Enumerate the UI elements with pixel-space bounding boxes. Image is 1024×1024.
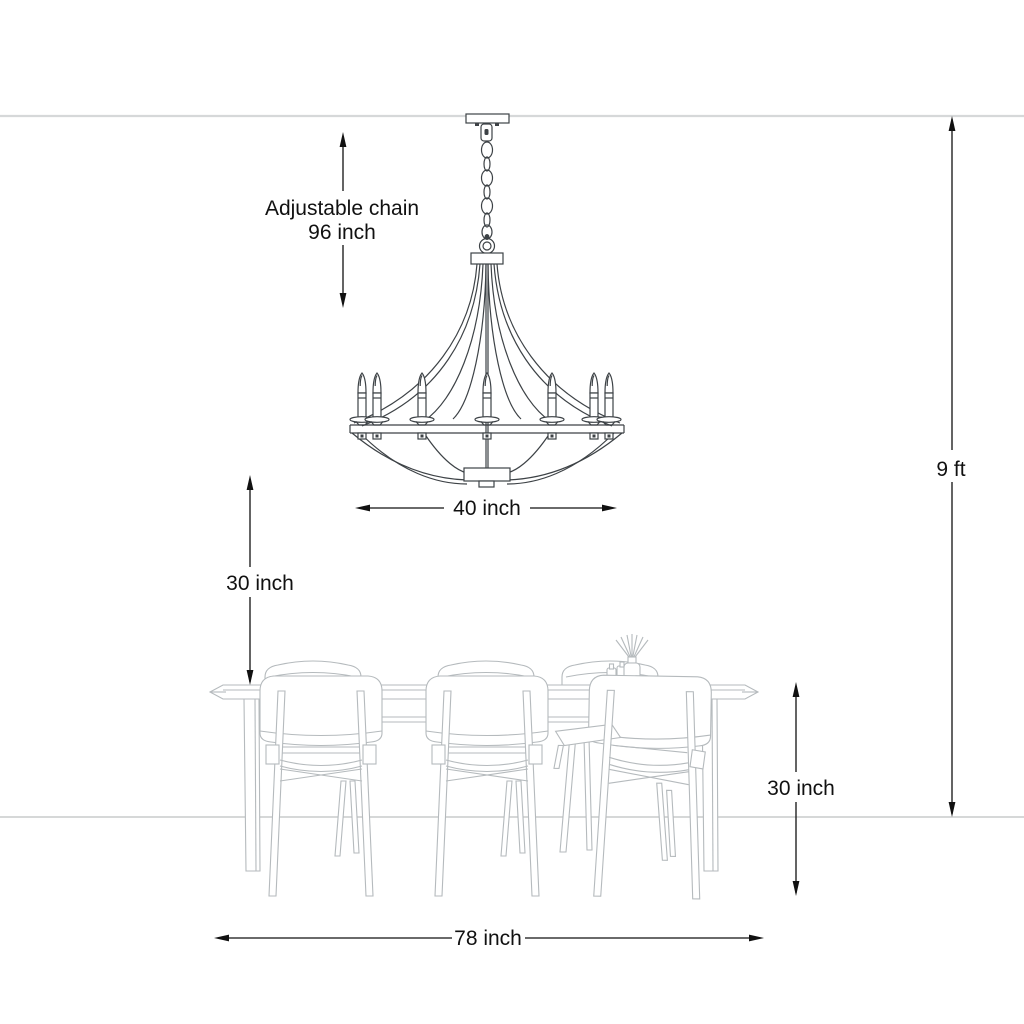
- chair-drawing-center: [426, 676, 548, 896]
- hanging-loop: [480, 239, 495, 254]
- dimension-diagram: Adjustable chain 96 inch 40 inch 9 ft 30…: [0, 0, 1024, 1024]
- chair-drawing-left: [260, 676, 382, 896]
- ceiling-height-label: 9 ft: [936, 458, 965, 481]
- hanging-clearance-label: 30 inch: [226, 572, 294, 595]
- chandelier-width-dimension: 40 inch: [355, 497, 617, 520]
- top-cap: [471, 253, 503, 264]
- candle-ring: [350, 425, 624, 433]
- table-width-label: 78 inch: [454, 927, 522, 950]
- chandelier-width-label: 40 inch: [453, 497, 521, 520]
- chandelier-drawing: [350, 114, 624, 487]
- ceiling-height-dimension: 9 ft: [930, 116, 974, 817]
- hanging-clearance-dimension: 30 inch: [226, 475, 294, 685]
- chain-label-line1: Adjustable chain: [265, 197, 419, 220]
- chain: [482, 142, 493, 239]
- table-leg-left: [244, 699, 260, 871]
- table-width-dimension: 78 inch: [214, 922, 764, 952]
- chain-dimension: Adjustable chain 96 inch: [258, 132, 426, 308]
- bottom-finial: [464, 468, 510, 481]
- chair-drawing-right: [552, 674, 712, 899]
- diagram-canvas: Adjustable chain 96 inch 40 inch 9 ft 30…: [0, 0, 1024, 1024]
- ceiling-canopy: [466, 114, 509, 123]
- table-height-label: 30 inch: [767, 777, 835, 800]
- table-height-dimension: 30 inch: [765, 682, 835, 896]
- chain-label-line2: 96 inch: [308, 221, 376, 244]
